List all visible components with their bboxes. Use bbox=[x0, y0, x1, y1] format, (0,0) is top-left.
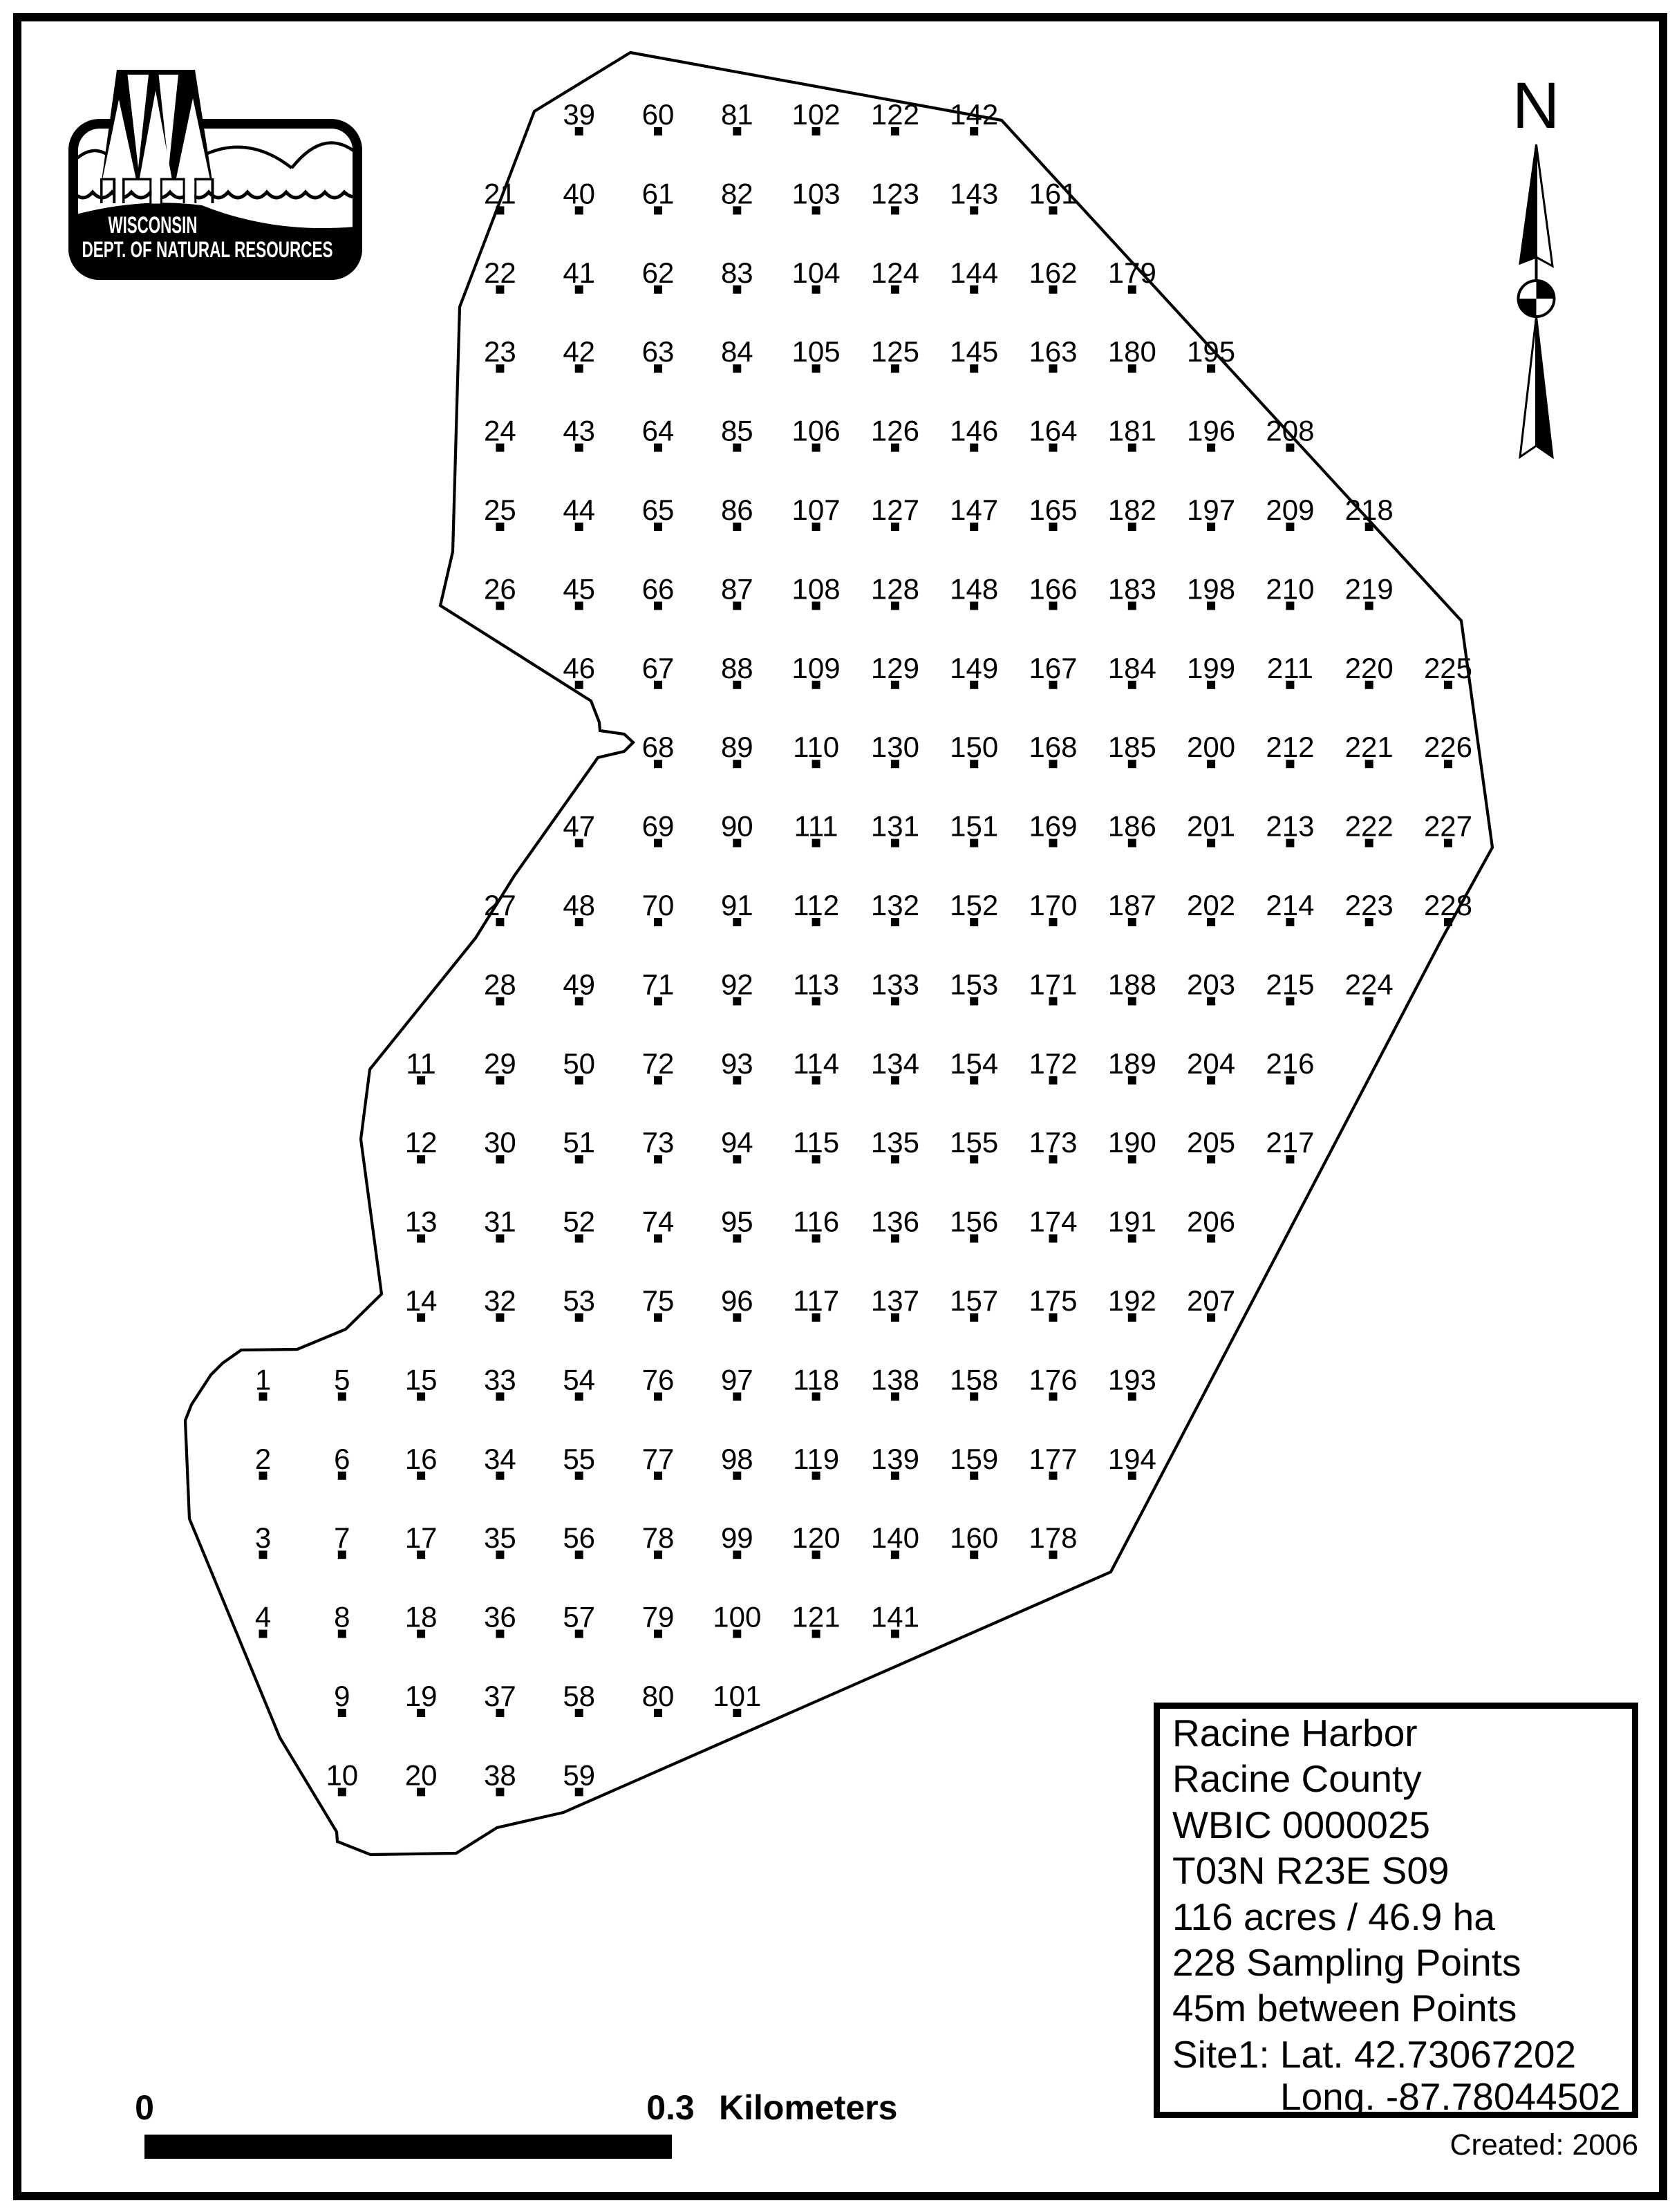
svg-text:211: 211 bbox=[1267, 652, 1313, 684]
svg-text:202: 202 bbox=[1187, 889, 1235, 921]
svg-text:58: 58 bbox=[563, 1680, 595, 1712]
svg-text:5: 5 bbox=[334, 1363, 350, 1396]
svg-text:7: 7 bbox=[334, 1521, 350, 1554]
svg-text:183: 183 bbox=[1108, 572, 1156, 605]
svg-text:223: 223 bbox=[1345, 889, 1394, 921]
svg-text:6: 6 bbox=[334, 1443, 350, 1475]
svg-text:140: 140 bbox=[871, 1521, 919, 1554]
svg-text:10: 10 bbox=[326, 1759, 358, 1791]
svg-text:113: 113 bbox=[793, 968, 839, 1000]
svg-text:101: 101 bbox=[713, 1680, 761, 1712]
svg-text:185: 185 bbox=[1108, 731, 1156, 763]
svg-text:160: 160 bbox=[950, 1521, 998, 1554]
svg-text:66: 66 bbox=[642, 572, 675, 605]
svg-text:29: 29 bbox=[484, 1047, 516, 1080]
svg-text:154: 154 bbox=[950, 1047, 998, 1080]
svg-text:122: 122 bbox=[871, 98, 919, 131]
svg-text:112: 112 bbox=[793, 889, 839, 921]
svg-text:Racine County: Racine County bbox=[1172, 1757, 1422, 1800]
svg-text:99: 99 bbox=[721, 1521, 753, 1554]
svg-text:30: 30 bbox=[484, 1126, 516, 1159]
svg-text:196: 196 bbox=[1187, 415, 1235, 447]
svg-text:188: 188 bbox=[1108, 968, 1156, 1000]
svg-text:95: 95 bbox=[721, 1206, 753, 1238]
svg-text:192: 192 bbox=[1108, 1284, 1156, 1317]
svg-text:150: 150 bbox=[950, 731, 998, 763]
svg-text:198: 198 bbox=[1187, 572, 1235, 605]
svg-text:94: 94 bbox=[721, 1126, 753, 1159]
svg-text:167: 167 bbox=[1029, 652, 1077, 684]
svg-text:151: 151 bbox=[950, 810, 998, 843]
svg-text:170: 170 bbox=[1029, 889, 1077, 921]
svg-text:81: 81 bbox=[721, 98, 753, 131]
svg-text:176: 176 bbox=[1029, 1363, 1077, 1396]
svg-text:117: 117 bbox=[793, 1284, 839, 1317]
svg-text:14: 14 bbox=[405, 1284, 438, 1317]
svg-text:144: 144 bbox=[950, 256, 998, 289]
svg-text:20: 20 bbox=[405, 1759, 438, 1791]
svg-text:141: 141 bbox=[871, 1601, 919, 1633]
svg-text:65: 65 bbox=[642, 494, 675, 526]
svg-text:166: 166 bbox=[1029, 572, 1077, 605]
svg-text:116 acres / 46.9 ha: 116 acres / 46.9 ha bbox=[1172, 1895, 1495, 1938]
svg-text:189: 189 bbox=[1108, 1047, 1156, 1080]
svg-text:3: 3 bbox=[255, 1521, 271, 1554]
svg-text:145: 145 bbox=[950, 335, 998, 368]
svg-text:0.3: 0.3 bbox=[646, 2088, 695, 2127]
svg-text:78: 78 bbox=[642, 1521, 675, 1554]
svg-text:55: 55 bbox=[563, 1443, 595, 1475]
svg-text:191: 191 bbox=[1108, 1206, 1156, 1238]
svg-text:28: 28 bbox=[484, 968, 516, 1000]
svg-text:115: 115 bbox=[793, 1126, 839, 1159]
svg-text:142: 142 bbox=[950, 98, 998, 131]
svg-text:219: 219 bbox=[1345, 572, 1394, 605]
svg-text:19: 19 bbox=[405, 1680, 438, 1712]
svg-text:31: 31 bbox=[484, 1206, 516, 1238]
svg-text:Created: 2006: Created: 2006 bbox=[1450, 2128, 1638, 2162]
svg-text:148: 148 bbox=[950, 572, 998, 605]
svg-text:137: 137 bbox=[871, 1284, 919, 1317]
svg-text:60: 60 bbox=[642, 98, 675, 131]
svg-text:102: 102 bbox=[792, 98, 841, 131]
svg-text:195: 195 bbox=[1187, 335, 1235, 368]
svg-text:186: 186 bbox=[1108, 810, 1156, 843]
svg-text:88: 88 bbox=[721, 652, 753, 684]
svg-text:139: 139 bbox=[871, 1443, 919, 1475]
svg-text:85: 85 bbox=[721, 415, 753, 447]
svg-text:200: 200 bbox=[1187, 731, 1235, 763]
svg-text:105: 105 bbox=[792, 335, 841, 368]
svg-text:Site1: Lat. 42.73067202: Site1: Lat. 42.73067202 bbox=[1172, 2033, 1576, 2076]
svg-text:0: 0 bbox=[135, 2088, 154, 2127]
svg-text:39: 39 bbox=[563, 98, 595, 131]
svg-text:50: 50 bbox=[563, 1047, 595, 1080]
svg-text:138: 138 bbox=[871, 1363, 919, 1396]
svg-text:61: 61 bbox=[642, 177, 675, 209]
svg-text:132: 132 bbox=[871, 889, 919, 921]
svg-text:22: 22 bbox=[484, 256, 516, 289]
svg-text:16: 16 bbox=[405, 1443, 438, 1475]
svg-text:146: 146 bbox=[950, 415, 998, 447]
svg-text:18: 18 bbox=[405, 1601, 438, 1633]
svg-text:159: 159 bbox=[950, 1443, 998, 1475]
svg-text:126: 126 bbox=[871, 415, 919, 447]
svg-text:174: 174 bbox=[1029, 1206, 1077, 1238]
svg-text:84: 84 bbox=[721, 335, 753, 368]
svg-text:217: 217 bbox=[1266, 1126, 1314, 1159]
svg-text:134: 134 bbox=[871, 1047, 919, 1080]
svg-text:129: 129 bbox=[871, 652, 919, 684]
svg-text:38: 38 bbox=[484, 1759, 516, 1791]
svg-text:228: 228 bbox=[1424, 889, 1472, 921]
svg-text:32: 32 bbox=[484, 1284, 516, 1317]
svg-text:177: 177 bbox=[1029, 1443, 1077, 1475]
svg-text:187: 187 bbox=[1108, 889, 1156, 921]
svg-text:93: 93 bbox=[721, 1047, 753, 1080]
svg-text:15: 15 bbox=[405, 1363, 438, 1396]
svg-text:128: 128 bbox=[871, 572, 919, 605]
svg-text:57: 57 bbox=[563, 1601, 595, 1633]
svg-text:43: 43 bbox=[563, 415, 595, 447]
svg-text:203: 203 bbox=[1187, 968, 1235, 1000]
svg-text:8: 8 bbox=[334, 1601, 350, 1633]
svg-text:116: 116 bbox=[793, 1206, 839, 1238]
svg-text:91: 91 bbox=[721, 889, 753, 921]
svg-text:17: 17 bbox=[405, 1521, 438, 1554]
svg-text:68: 68 bbox=[642, 731, 675, 763]
svg-text:WBIC 0000025: WBIC 0000025 bbox=[1172, 1803, 1430, 1846]
svg-text:136: 136 bbox=[871, 1206, 919, 1238]
svg-text:158: 158 bbox=[950, 1363, 998, 1396]
svg-text:49: 49 bbox=[563, 968, 595, 1000]
svg-text:228 Sampling Points: 228 Sampling Points bbox=[1172, 1941, 1521, 1984]
svg-text:82: 82 bbox=[721, 177, 753, 209]
svg-text:47: 47 bbox=[563, 810, 595, 843]
svg-text:59: 59 bbox=[563, 1759, 595, 1791]
svg-text:178: 178 bbox=[1029, 1521, 1077, 1554]
svg-text:108: 108 bbox=[792, 572, 841, 605]
svg-text:21: 21 bbox=[484, 177, 516, 209]
svg-text:155: 155 bbox=[950, 1126, 998, 1159]
svg-text:75: 75 bbox=[642, 1284, 675, 1317]
svg-text:89: 89 bbox=[721, 731, 753, 763]
svg-text:56: 56 bbox=[563, 1521, 595, 1554]
svg-text:12: 12 bbox=[405, 1126, 438, 1159]
svg-text:120: 120 bbox=[792, 1521, 841, 1554]
svg-text:11: 11 bbox=[406, 1047, 436, 1080]
svg-text:109: 109 bbox=[792, 652, 841, 684]
svg-text:171: 171 bbox=[1029, 968, 1077, 1000]
svg-text:157: 157 bbox=[950, 1284, 998, 1317]
svg-text:207: 207 bbox=[1187, 1284, 1235, 1317]
svg-text:97: 97 bbox=[721, 1363, 753, 1396]
svg-text:130: 130 bbox=[871, 731, 919, 763]
svg-text:208: 208 bbox=[1266, 415, 1314, 447]
svg-text:4: 4 bbox=[255, 1601, 271, 1633]
svg-text:197: 197 bbox=[1187, 494, 1235, 526]
svg-text:74: 74 bbox=[642, 1206, 675, 1238]
svg-text:218: 218 bbox=[1345, 494, 1394, 526]
svg-text:133: 133 bbox=[871, 968, 919, 1000]
svg-text:13: 13 bbox=[405, 1206, 438, 1238]
svg-text:212: 212 bbox=[1266, 731, 1314, 763]
svg-text:44: 44 bbox=[563, 494, 595, 526]
svg-text:63: 63 bbox=[642, 335, 675, 368]
svg-text:163: 163 bbox=[1029, 335, 1077, 368]
svg-text:N: N bbox=[1512, 69, 1560, 142]
svg-text:53: 53 bbox=[563, 1284, 595, 1317]
svg-text:92: 92 bbox=[721, 968, 753, 1000]
svg-text:206: 206 bbox=[1187, 1206, 1235, 1238]
svg-text:190: 190 bbox=[1108, 1126, 1156, 1159]
svg-text:162: 162 bbox=[1029, 256, 1077, 289]
svg-text:118: 118 bbox=[793, 1363, 839, 1396]
svg-text:77: 77 bbox=[642, 1443, 675, 1475]
svg-text:111: 111 bbox=[794, 810, 838, 843]
svg-text:41: 41 bbox=[563, 256, 595, 289]
svg-text:27: 27 bbox=[484, 889, 516, 921]
svg-text:46: 46 bbox=[563, 652, 595, 684]
svg-text:149: 149 bbox=[950, 652, 998, 684]
svg-text:169: 169 bbox=[1029, 810, 1077, 843]
svg-text:72: 72 bbox=[642, 1047, 675, 1080]
svg-text:48: 48 bbox=[563, 889, 595, 921]
svg-text:24: 24 bbox=[484, 415, 516, 447]
svg-text:127: 127 bbox=[871, 494, 919, 526]
svg-text:52: 52 bbox=[563, 1206, 595, 1238]
svg-text:70: 70 bbox=[642, 889, 675, 921]
svg-text:119: 119 bbox=[793, 1443, 839, 1475]
svg-text:199: 199 bbox=[1187, 652, 1235, 684]
svg-text:209: 209 bbox=[1266, 494, 1314, 526]
svg-text:100: 100 bbox=[713, 1601, 761, 1633]
svg-text:80: 80 bbox=[642, 1680, 675, 1712]
svg-text:106: 106 bbox=[792, 415, 841, 447]
svg-text:143: 143 bbox=[950, 177, 998, 209]
svg-text:205: 205 bbox=[1187, 1126, 1235, 1159]
svg-text:204: 204 bbox=[1187, 1047, 1235, 1080]
svg-text:45: 45 bbox=[563, 572, 595, 605]
svg-text:135: 135 bbox=[871, 1126, 919, 1159]
svg-text:175: 175 bbox=[1029, 1284, 1077, 1317]
svg-text:33: 33 bbox=[484, 1363, 516, 1396]
svg-text:64: 64 bbox=[642, 415, 675, 447]
svg-text:9: 9 bbox=[334, 1680, 350, 1712]
svg-text:114: 114 bbox=[793, 1047, 839, 1080]
svg-text:168: 168 bbox=[1029, 731, 1077, 763]
svg-text:76: 76 bbox=[642, 1363, 675, 1396]
svg-text:226: 226 bbox=[1424, 731, 1472, 763]
svg-text:156: 156 bbox=[950, 1206, 998, 1238]
svg-text:224: 224 bbox=[1345, 968, 1394, 1000]
svg-text:103: 103 bbox=[792, 177, 841, 209]
svg-text:131: 131 bbox=[871, 810, 919, 843]
svg-text:79: 79 bbox=[642, 1601, 675, 1633]
svg-text:201: 201 bbox=[1187, 810, 1235, 843]
svg-text:26: 26 bbox=[484, 572, 516, 605]
svg-text:40: 40 bbox=[563, 177, 595, 209]
svg-text:165: 165 bbox=[1029, 494, 1077, 526]
svg-text:123: 123 bbox=[871, 177, 919, 209]
svg-text:125: 125 bbox=[871, 335, 919, 368]
svg-text:225: 225 bbox=[1424, 652, 1472, 684]
svg-text:Kilometers: Kilometers bbox=[719, 2088, 897, 2127]
svg-text:DEPT. OF NATURAL RESOURCES: DEPT. OF NATURAL RESOURCES bbox=[82, 237, 333, 262]
svg-text:42: 42 bbox=[563, 335, 595, 368]
svg-text:213: 213 bbox=[1266, 810, 1314, 843]
svg-text:67: 67 bbox=[642, 652, 675, 684]
svg-text:Racine Harbor: Racine Harbor bbox=[1172, 1712, 1418, 1754]
svg-text:152: 152 bbox=[950, 889, 998, 921]
svg-text:54: 54 bbox=[563, 1363, 595, 1396]
svg-text:51: 51 bbox=[563, 1126, 595, 1159]
svg-text:210: 210 bbox=[1266, 572, 1314, 605]
svg-text:37: 37 bbox=[484, 1680, 516, 1712]
svg-text:73: 73 bbox=[642, 1126, 675, 1159]
svg-text:90: 90 bbox=[721, 810, 753, 843]
svg-text:35: 35 bbox=[484, 1521, 516, 1554]
svg-text:181: 181 bbox=[1108, 415, 1156, 447]
svg-text:WISCONSIN: WISCONSIN bbox=[109, 212, 198, 238]
svg-text:221: 221 bbox=[1345, 731, 1394, 763]
svg-text:220: 220 bbox=[1345, 652, 1394, 684]
svg-text:83: 83 bbox=[721, 256, 753, 289]
svg-text:62: 62 bbox=[642, 256, 675, 289]
svg-text:2: 2 bbox=[255, 1443, 271, 1475]
svg-text:180: 180 bbox=[1108, 335, 1156, 368]
svg-text:1: 1 bbox=[255, 1363, 271, 1396]
svg-text:107: 107 bbox=[792, 494, 841, 526]
svg-text:193: 193 bbox=[1108, 1363, 1156, 1396]
svg-text:34: 34 bbox=[484, 1443, 516, 1475]
svg-text:214: 214 bbox=[1266, 889, 1314, 921]
svg-text:110: 110 bbox=[793, 731, 839, 763]
svg-text:153: 153 bbox=[950, 968, 998, 1000]
svg-text:98: 98 bbox=[721, 1443, 753, 1475]
svg-text:25: 25 bbox=[484, 494, 516, 526]
svg-text:215: 215 bbox=[1266, 968, 1314, 1000]
svg-text:Long. -87.78044502: Long. -87.78044502 bbox=[1280, 2075, 1620, 2118]
svg-text:147: 147 bbox=[950, 494, 998, 526]
svg-text:124: 124 bbox=[871, 256, 919, 289]
svg-text:45m between Points: 45m between Points bbox=[1172, 1987, 1517, 2030]
svg-text:173: 173 bbox=[1029, 1126, 1077, 1159]
svg-text:69: 69 bbox=[642, 810, 675, 843]
svg-text:179: 179 bbox=[1108, 256, 1156, 289]
svg-text:23: 23 bbox=[484, 335, 516, 368]
svg-text:121: 121 bbox=[792, 1601, 841, 1633]
svg-text:71: 71 bbox=[642, 968, 675, 1000]
svg-text:172: 172 bbox=[1029, 1047, 1077, 1080]
svg-text:36: 36 bbox=[484, 1601, 516, 1633]
svg-text:194: 194 bbox=[1108, 1443, 1156, 1475]
svg-text:T03N R23E S09: T03N R23E S09 bbox=[1172, 1849, 1450, 1892]
svg-text:104: 104 bbox=[792, 256, 841, 289]
svg-text:222: 222 bbox=[1345, 810, 1394, 843]
svg-text:87: 87 bbox=[721, 572, 753, 605]
svg-text:96: 96 bbox=[721, 1284, 753, 1317]
svg-text:216: 216 bbox=[1266, 1047, 1314, 1080]
svg-text:182: 182 bbox=[1108, 494, 1156, 526]
svg-text:161: 161 bbox=[1029, 177, 1077, 209]
svg-text:86: 86 bbox=[721, 494, 753, 526]
svg-text:164: 164 bbox=[1029, 415, 1077, 447]
svg-text:184: 184 bbox=[1108, 652, 1156, 684]
svg-text:227: 227 bbox=[1424, 810, 1472, 843]
